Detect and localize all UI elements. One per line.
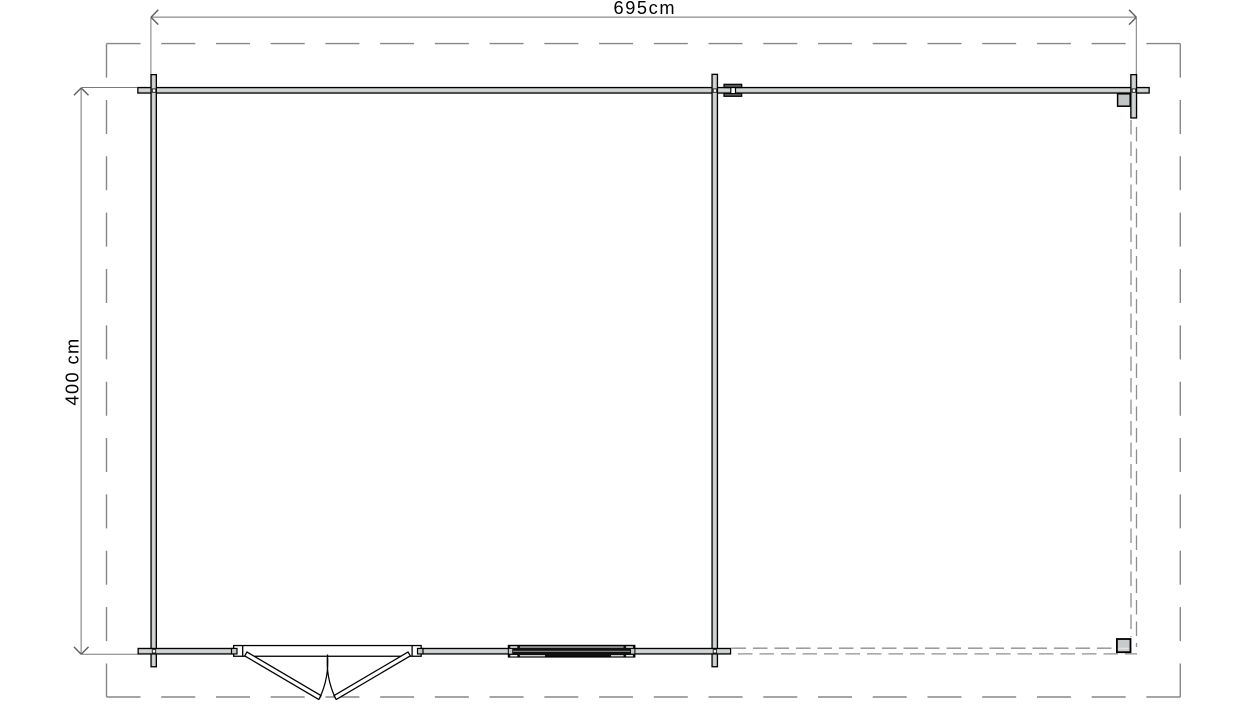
svg-text:400 cm: 400 cm — [63, 337, 83, 405]
svg-text:695cm: 695cm — [614, 0, 677, 18]
